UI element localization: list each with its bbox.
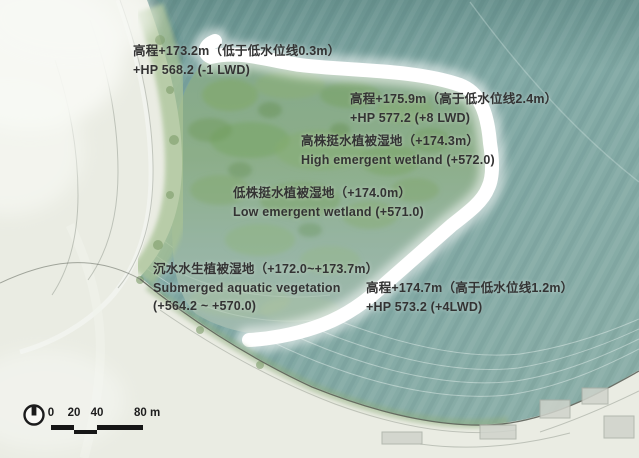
scale-tick-40: 40 (91, 407, 104, 419)
label-line-en: +HP 577.2 (+8 LWD) (350, 109, 557, 128)
label-submerged-vegetation: 沉水水生植被湿地（+172.0~+173.7m） Submerged aquat… (153, 260, 378, 316)
label-low-emergent-wetland: 低株挺水植被湿地（+174.0m） Low emergent wetland (… (233, 184, 424, 221)
label-line-en: Submerged aquatic vegetation (153, 279, 378, 298)
label-elevation-174-7: 高程+174.7m（高于低水位线1.2m） +HP 573.2 (+4LWD) (366, 279, 573, 316)
site-plan-map: 高程+173.2m（低于低水位线0.3m） +HP 568.2 (-1 LWD)… (0, 0, 639, 458)
scale-bar: 0 20 40 80 m (22, 403, 207, 451)
scale-bar-segment-3 (97, 425, 143, 430)
label-high-emergent-wetland: 高株挺水植被湿地（+174.3m） High emergent wetland … (301, 132, 495, 169)
label-line-en: +HP 573.2 (+4LWD) (366, 298, 573, 317)
label-line-en: Low emergent wetland (+571.0) (233, 203, 424, 222)
label-line-zh: 高程+175.9m（高于低水位线2.4m） (350, 90, 557, 109)
scale-tick-20: 20 (68, 407, 81, 419)
scale-bar-segment-1 (51, 425, 74, 430)
label-line-zh: 高株挺水植被湿地（+174.3m） (301, 132, 495, 151)
label-line-en: +HP 568.2 (-1 LWD) (133, 61, 340, 80)
label-line-zh: 高程+174.7m（高于低水位线1.2m） (366, 279, 573, 298)
scale-tick-0: 0 (48, 407, 54, 419)
label-line-zh: 沉水水生植被湿地（+172.0~+173.7m） (153, 260, 378, 279)
scale-bar-segment-2 (74, 430, 97, 435)
label-elevation-173-2: 高程+173.2m（低于低水位线0.3m） +HP 568.2 (-1 LWD) (133, 42, 340, 79)
label-line-en: High emergent wetland (+572.0) (301, 151, 495, 170)
label-line-values: (+564.2 ~ +570.0) (153, 297, 378, 316)
label-line-zh: 高程+173.2m（低于低水位线0.3m） (133, 42, 340, 61)
label-elevation-175-9: 高程+175.9m（高于低水位线2.4m） +HP 577.2 (+8 LWD) (350, 90, 557, 127)
north-arrow-icon (22, 403, 46, 427)
label-line-zh: 低株挺水植被湿地（+174.0m） (233, 184, 424, 203)
scale-tick-80m: 80 m (134, 407, 160, 419)
